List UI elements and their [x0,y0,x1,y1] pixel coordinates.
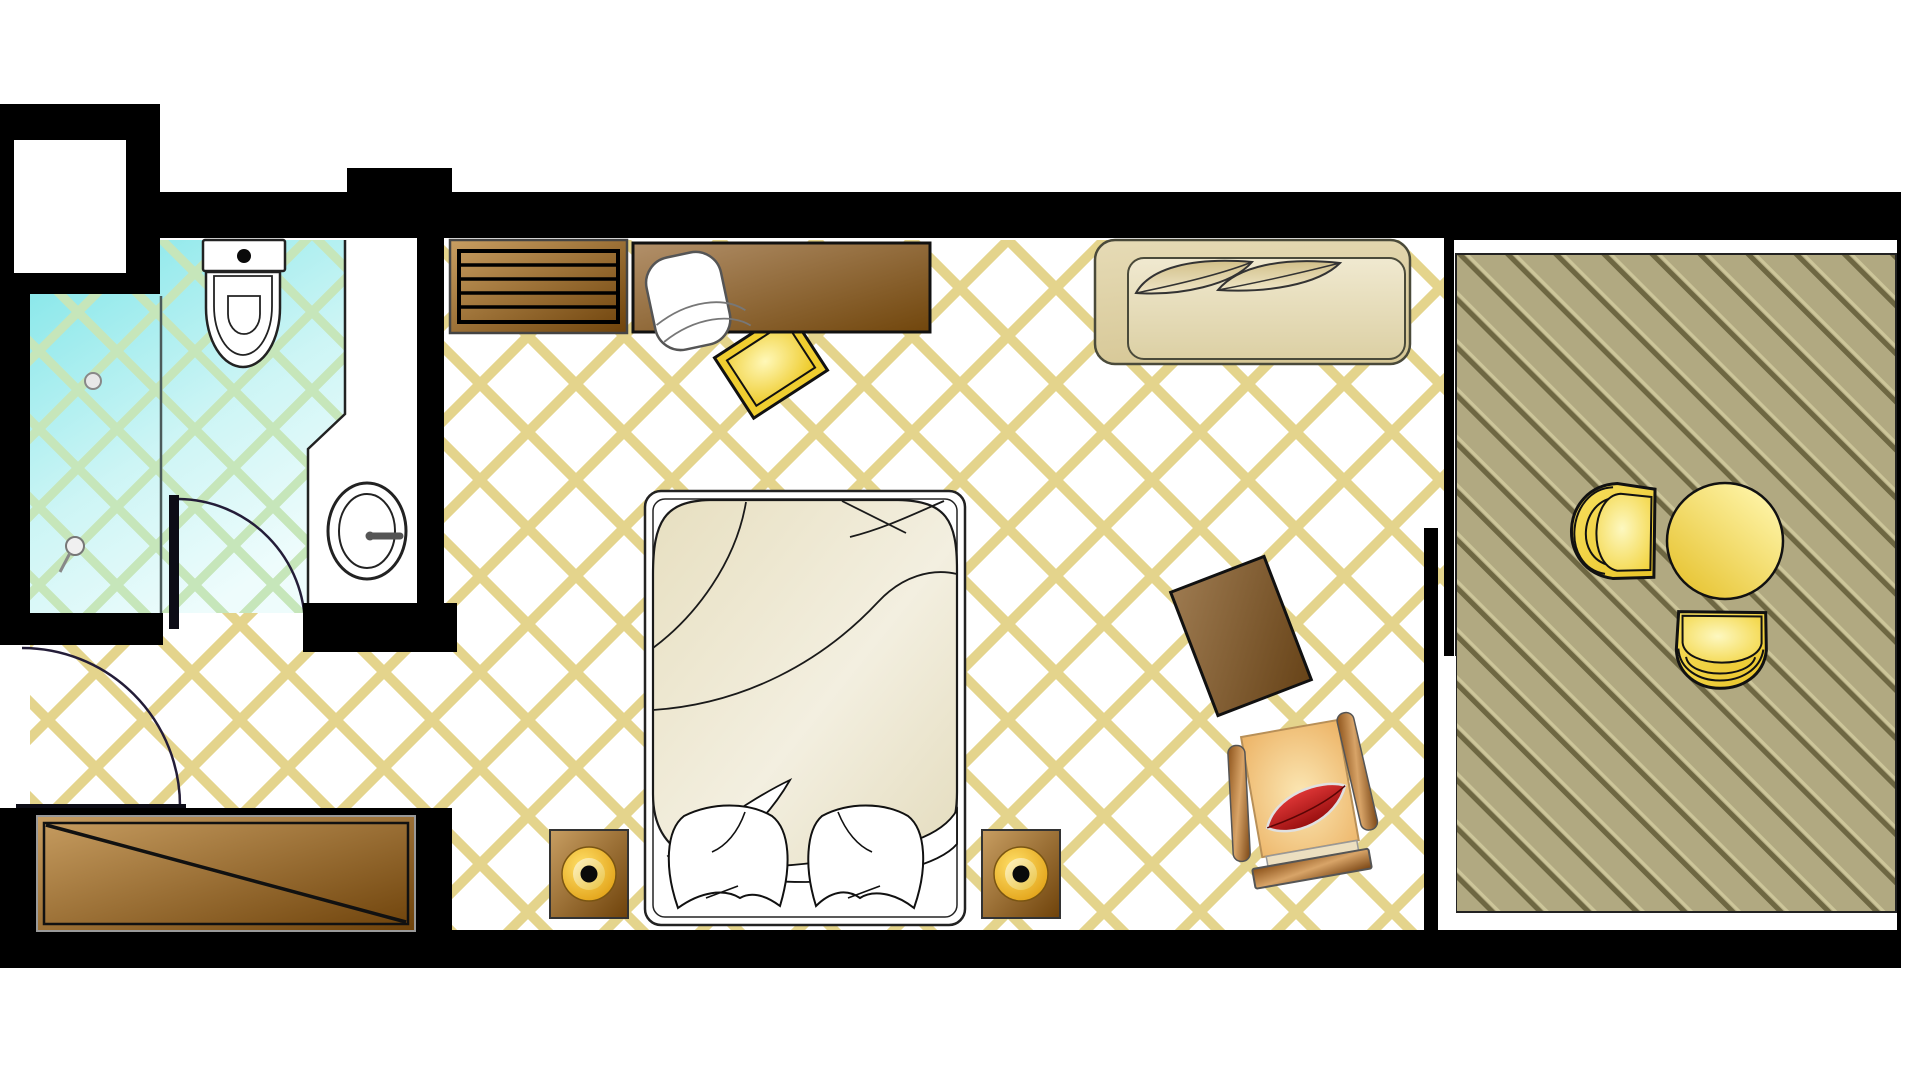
bathroom-floor [30,240,345,613]
light-shaft-window [14,140,126,273]
shower-drain-icon [66,537,84,555]
wall-bottom [452,930,1901,968]
balcony-door-gap [1438,656,1456,930]
wall-bath-divider [417,238,444,638]
lamp-right-center [1013,866,1030,883]
floor-plan [0,0,1920,1080]
wall-bath-bottom-right [303,603,457,652]
sofa [1095,240,1410,364]
luggage-bench [450,240,627,333]
wall-balcony-divider [1444,238,1454,656]
floor-plan-canvas [0,0,1920,1080]
balcony-chair-bottom [1675,610,1768,690]
bench-frame [450,240,627,333]
console-table [37,816,415,931]
nightstand-left [550,830,628,918]
lamp-left-center [581,866,598,883]
nightstand-right [982,830,1060,918]
double-bed [645,491,965,925]
pillow-right [808,806,923,909]
wall-left [0,240,30,645]
faucet-knob-icon [366,532,375,541]
balcony-deck [1456,254,1896,912]
balcony-chair-left-seat [1594,492,1656,573]
wall-bath-bottom-left [0,613,163,645]
pillow-left [669,806,788,909]
bathroom-door-leaf [169,495,179,629]
balcony-railing [1897,240,1901,932]
shower-knob-icon [85,373,101,389]
wall-top [160,192,1445,238]
deck-planks [1456,254,1896,912]
bathroom-lattice [30,240,345,613]
wall-balcony-top [1445,192,1901,240]
wall-top-bump [347,168,452,194]
sliding-door-panel [1424,528,1438,932]
balcony-chair-bottom-seat [1681,614,1763,664]
toilet-flush-button [237,249,251,263]
balcony-table [1667,483,1783,599]
